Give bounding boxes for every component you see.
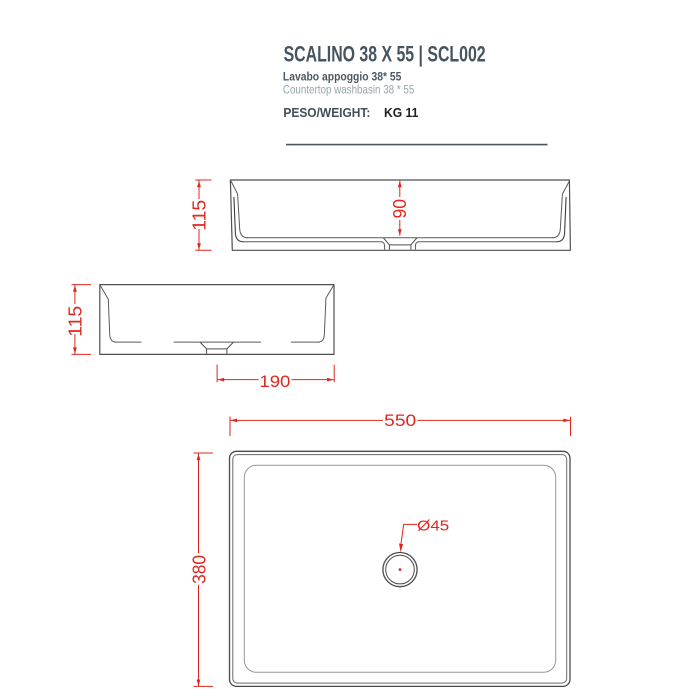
svg-text:115: 115 [65,306,86,337]
svg-text:115: 115 [188,200,209,231]
svg-text:550: 550 [384,411,416,430]
svg-text:Countertop washbasin 38 * 55: Countertop washbasin 38 * 55 [283,83,415,97]
svg-text:190: 190 [259,372,290,391]
svg-text:90: 90 [389,199,410,219]
svg-text:Lavabo appoggio 38* 55: Lavabo appoggio 38* 55 [283,70,402,84]
svg-text:Ø45: Ø45 [417,517,449,534]
svg-text:380: 380 [188,555,209,584]
svg-text:PESO/WEIGHT:: PESO/WEIGHT: [283,105,370,120]
svg-text:SCALINO 38 X 55 | SCL002: SCALINO 38 X 55 | SCL002 [284,41,486,66]
svg-text:KG 11: KG 11 [384,105,418,120]
